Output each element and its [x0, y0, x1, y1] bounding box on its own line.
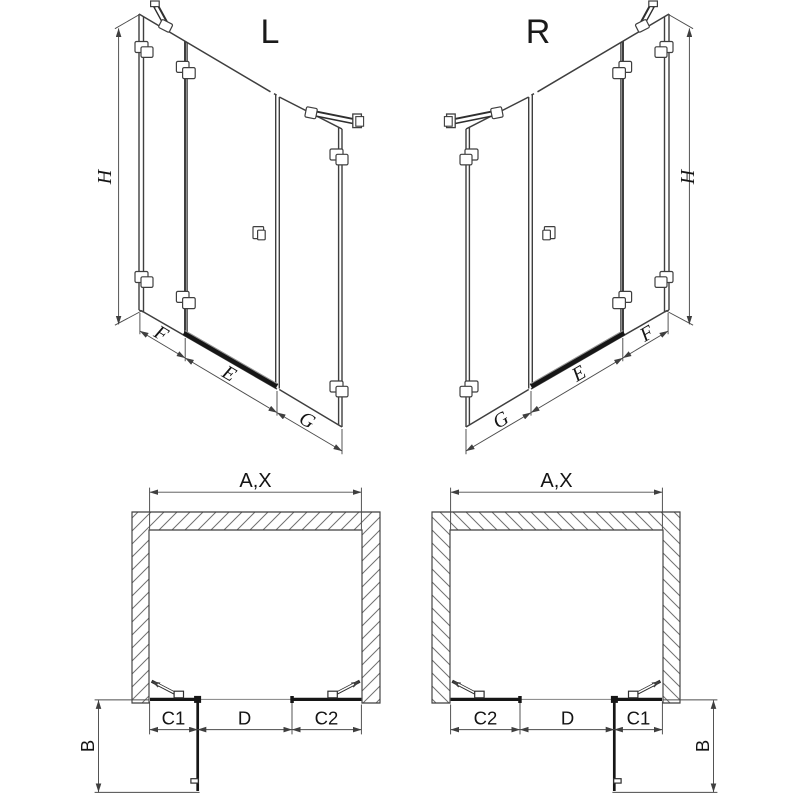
dim-label-width-left: A,X — [239, 470, 271, 492]
plan-drawing-left — [95, 488, 380, 793]
dim-label-d-right: D — [561, 708, 574, 729]
shower-enclosure-diagram: L H F E G R H F E G A,X C1 D C2 B A,X C2… — [0, 0, 800, 800]
variant-label-right: R — [526, 13, 551, 51]
dim-label-height-left: H — [94, 168, 116, 185]
dim-label-d-left: D — [238, 708, 251, 729]
dim-label-front-fixed-right: F — [635, 321, 658, 347]
dim-label-height-right: H — [677, 168, 699, 185]
dim-label-door-right: E — [567, 361, 590, 387]
dim-label-c2-left: C2 — [315, 708, 339, 729]
diagram-page: L H F E G R H F E G A,X C1 D C2 B A,X C2… — [0, 0, 800, 800]
dim-label-c1-left: C1 — [162, 708, 186, 729]
plan-drawing-right — [432, 488, 717, 793]
perspective-view-right: R H F E G — [444, 1, 699, 454]
dim-label-c2-right: C2 — [474, 708, 498, 729]
dim-label-depth-left: B — [77, 740, 98, 752]
perspective-view-left: L H F E G — [94, 1, 364, 454]
plan-view-right: A,X C2 D C1 B — [432, 470, 717, 792]
enclosure-drawing-left — [115, 1, 364, 454]
dim-label-front-fixed-left: F — [149, 321, 172, 347]
dim-label-c1-right: C1 — [627, 708, 651, 729]
dim-label-depth-right: B — [692, 740, 713, 752]
dim-label-door-left: E — [217, 361, 240, 387]
dim-label-width-right: A,X — [540, 470, 572, 492]
plan-view-left: A,X C1 D C2 B — [77, 470, 380, 792]
variant-label-left: L — [261, 13, 280, 51]
enclosure-drawing-right — [444, 1, 693, 454]
